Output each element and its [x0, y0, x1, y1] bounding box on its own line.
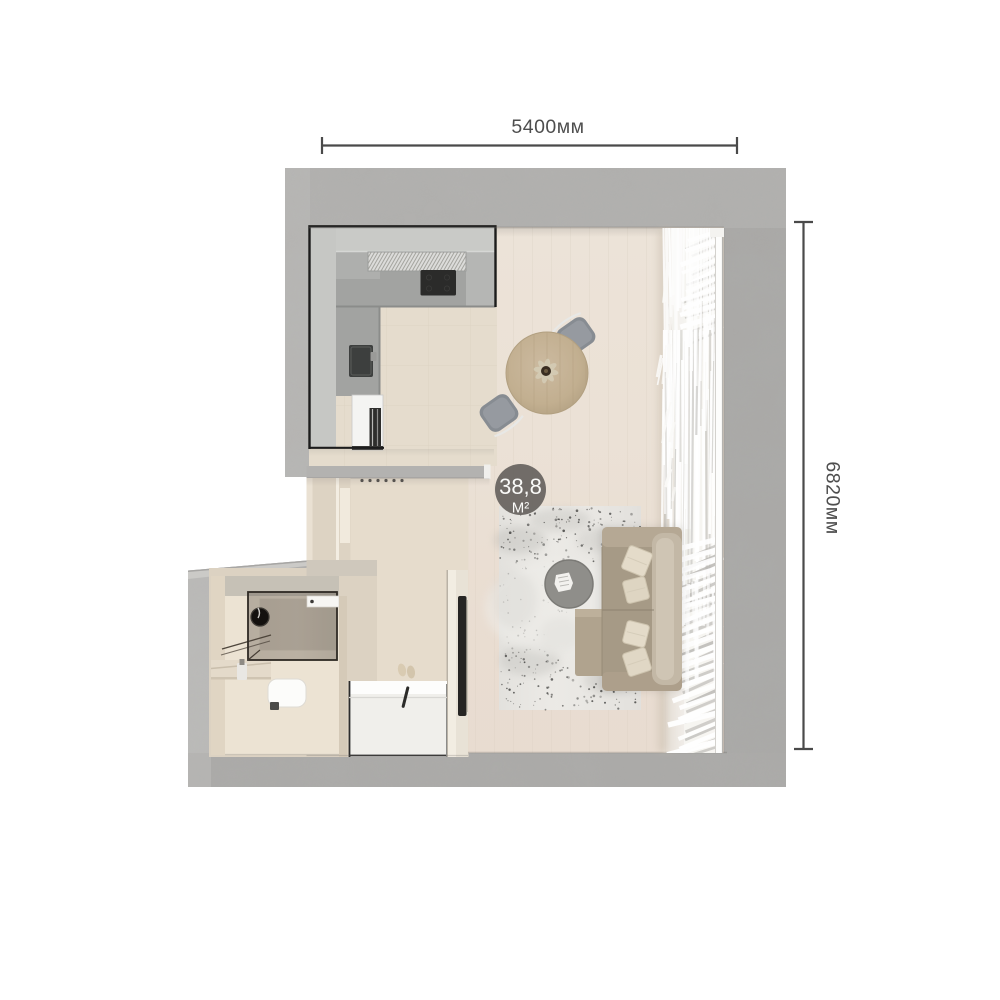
svg-text:38,8: 38,8 [499, 474, 542, 499]
svg-text:5400мм: 5400мм [511, 116, 584, 138]
svg-text:6820мм: 6820мм [822, 461, 844, 534]
svg-text:М²: М² [512, 500, 530, 517]
